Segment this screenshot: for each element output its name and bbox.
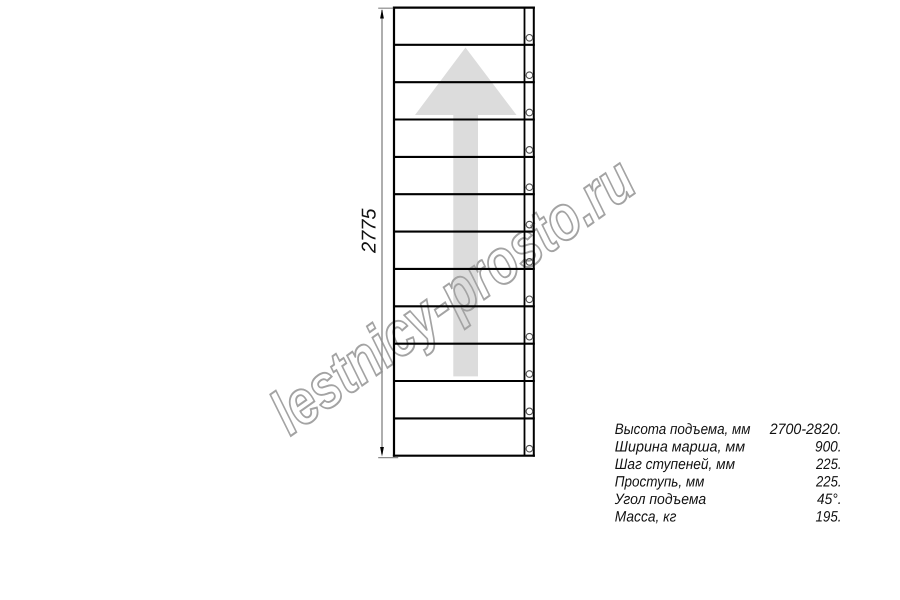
- svg-text:Шаг ступеней, мм: Шаг ступеней, мм: [615, 456, 735, 473]
- svg-text:225.: 225.: [815, 473, 841, 490]
- svg-text:2775: 2775: [359, 208, 381, 254]
- svg-text:Высота подъема, мм: Высота подъема, мм: [615, 421, 751, 438]
- svg-text:225.: 225.: [815, 456, 841, 473]
- svg-text:900.: 900.: [815, 438, 842, 455]
- svg-text:Проступь, мм: Проступь, мм: [615, 473, 705, 490]
- svg-text:195.: 195.: [816, 508, 842, 525]
- svg-text:Ширина марша, мм: Ширина марша, мм: [615, 438, 745, 455]
- svg-text:2700-2820.: 2700-2820.: [769, 421, 842, 438]
- svg-text:Угол подъема: Угол подъема: [614, 491, 706, 508]
- svg-text:45°.: 45°.: [817, 491, 842, 508]
- svg-text:Масса, кг: Масса, кг: [615, 508, 677, 525]
